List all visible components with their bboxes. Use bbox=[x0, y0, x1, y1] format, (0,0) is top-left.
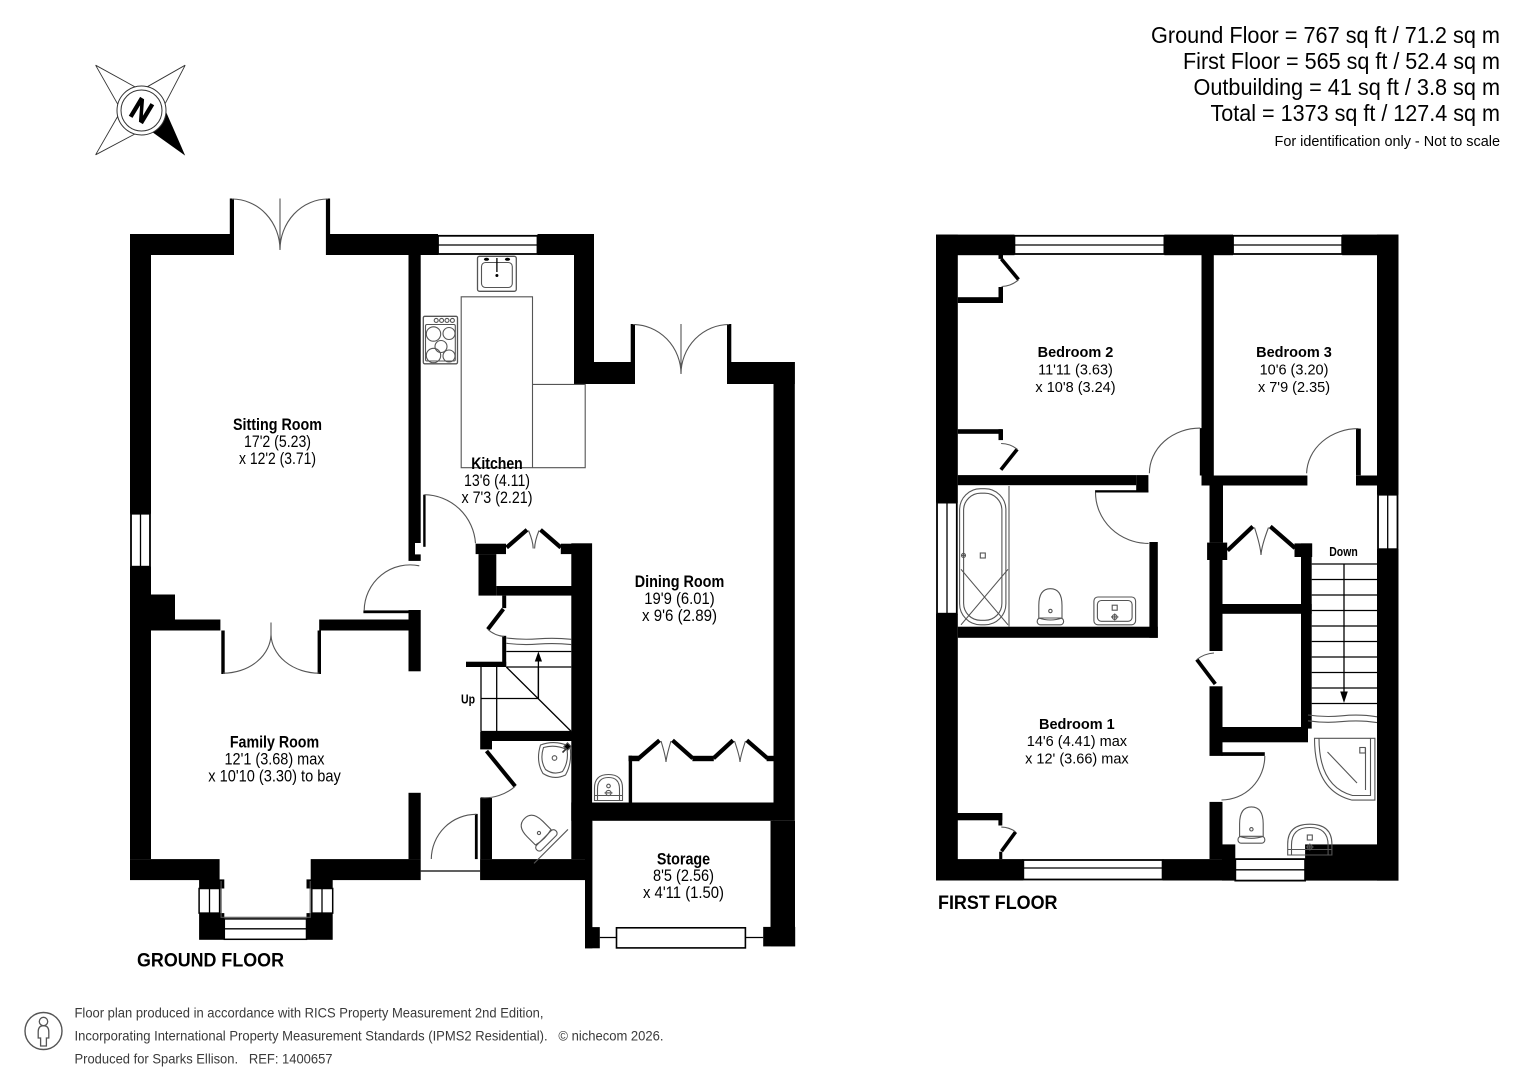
svg-text:GROUND FLOOR: GROUND FLOOR bbox=[137, 949, 284, 971]
svg-text:Ground Floor = 767 sq ft / 71.: Ground Floor = 767 sq ft / 71.2 sq m bbox=[1151, 22, 1500, 48]
svg-text:11'11 (3.63): 11'11 (3.63) bbox=[1038, 362, 1113, 378]
svg-text:Incorporating International Pr: Incorporating International Property Mea… bbox=[75, 1027, 664, 1043]
svg-text:x 9'6 (2.89): x 9'6 (2.89) bbox=[642, 606, 717, 625]
svg-text:x 10'8 (3.24): x 10'8 (3.24) bbox=[1035, 380, 1115, 396]
svg-text:For identification only - Not: For identification only - Not to scale bbox=[1275, 133, 1501, 150]
svg-text:Bedroom 3: Bedroom 3 bbox=[1256, 345, 1332, 361]
svg-text:x 12'2 (3.71): x 12'2 (3.71) bbox=[239, 449, 316, 468]
svg-text:FIRST FLOOR: FIRST FLOOR bbox=[938, 892, 1058, 914]
svg-text:x 10'10 (3.30) to bay: x 10'10 (3.30) to bay bbox=[208, 767, 341, 786]
svg-text:Produced for Sparks Ellison.: Produced for Sparks Ellison. REF: 140065… bbox=[75, 1050, 333, 1066]
svg-text:x 7'9 (2.35): x 7'9 (2.35) bbox=[1258, 380, 1330, 396]
svg-text:x 4'11 (1.50): x 4'11 (1.50) bbox=[643, 883, 724, 902]
svg-text:Up: Up bbox=[461, 692, 475, 706]
svg-text:14'6 (4.41) max: 14'6 (4.41) max bbox=[1027, 734, 1128, 750]
svg-text:Floor plan produced in accorda: Floor plan produced in accordance with R… bbox=[75, 1005, 544, 1021]
svg-text:x 7'3 (2.21): x 7'3 (2.21) bbox=[462, 488, 533, 507]
svg-text:Bedroom 1: Bedroom 1 bbox=[1039, 717, 1115, 733]
svg-text:First Floor = 565 sq ft / 52.4: First Floor = 565 sq ft / 52.4 sq m bbox=[1183, 48, 1500, 74]
svg-text:Total = 1373 sq ft / 127.4 sq: Total = 1373 sq ft / 127.4 sq m bbox=[1211, 100, 1501, 126]
svg-text:Down: Down bbox=[1329, 545, 1358, 559]
svg-text:Bedroom 2: Bedroom 2 bbox=[1038, 345, 1114, 361]
svg-text:x 12' (3.66) max: x 12' (3.66) max bbox=[1025, 751, 1129, 767]
svg-text:Outbuilding = 41 sq ft / 3.8 s: Outbuilding = 41 sq ft / 3.8 sq m bbox=[1194, 74, 1501, 100]
svg-text:10'6 (3.20): 10'6 (3.20) bbox=[1260, 362, 1329, 378]
